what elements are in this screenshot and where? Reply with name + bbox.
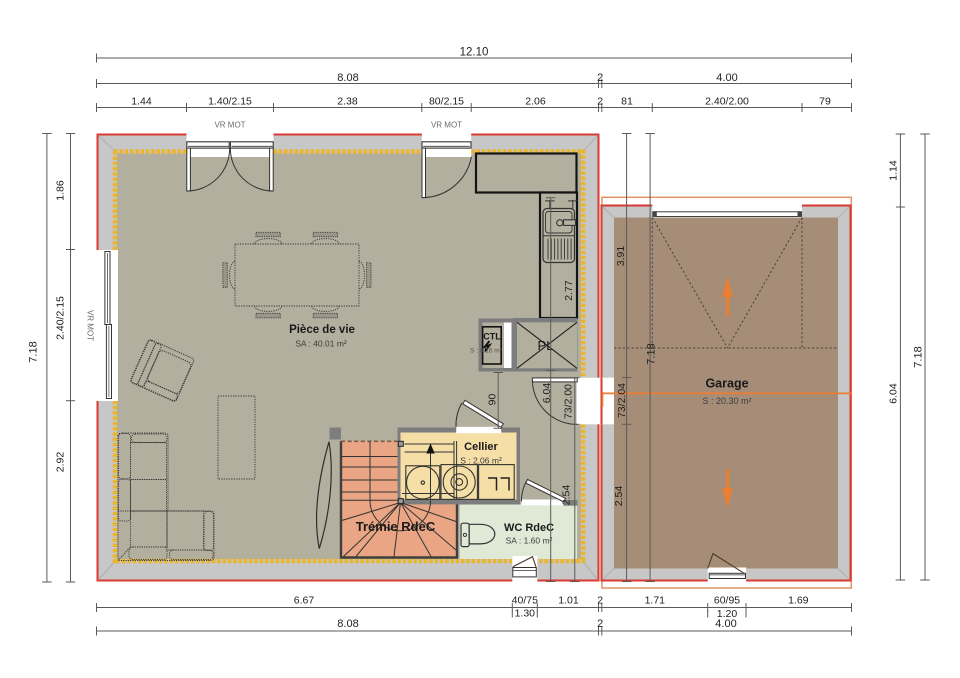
svg-text:1.71: 1.71 (645, 595, 666, 607)
svg-text:7.18: 7.18 (913, 346, 925, 367)
svg-text:1.30: 1.30 (515, 608, 536, 620)
svg-text:1.69: 1.69 (788, 595, 809, 607)
svg-text:VR MOT: VR MOT (431, 121, 462, 130)
svg-text:2.92: 2.92 (55, 452, 67, 473)
svg-text:4.00: 4.00 (716, 72, 737, 84)
svg-text:S : 20.30 m²: S : 20.30 m² (702, 396, 751, 406)
svg-text:SA : 40.01 m²: SA : 40.01 m² (295, 339, 347, 349)
svg-text:VR MOT: VR MOT (86, 310, 95, 341)
svg-text:2.54: 2.54 (560, 485, 572, 506)
svg-text:80/2.15: 80/2.15 (429, 95, 464, 107)
svg-text:1.40/2.15: 1.40/2.15 (208, 95, 252, 107)
svg-text:Cellier: Cellier (464, 441, 498, 453)
svg-text:73/2.00: 73/2.00 (563, 384, 575, 419)
svg-text:7.18: 7.18 (28, 341, 40, 362)
svg-text:1.86: 1.86 (55, 180, 67, 201)
svg-text:Trémie RdeC: Trémie RdeC (356, 519, 436, 534)
svg-text:Garage: Garage (705, 377, 748, 391)
svg-text:1.01: 1.01 (558, 595, 579, 607)
svg-text:2.38: 2.38 (337, 95, 358, 107)
svg-text:2.77: 2.77 (563, 280, 575, 301)
svg-text:2: 2 (597, 72, 603, 84)
svg-text:40/75: 40/75 (512, 595, 538, 607)
svg-text:6.04: 6.04 (541, 383, 553, 404)
svg-text:2.40/2.00: 2.40/2.00 (705, 95, 749, 107)
svg-text:7.18: 7.18 (646, 343, 658, 364)
svg-text:SA : 1.60 m²: SA : 1.60 m² (506, 536, 553, 546)
svg-text:2: 2 (597, 618, 603, 630)
svg-text:81: 81 (621, 95, 633, 107)
svg-text:8.08: 8.08 (337, 618, 358, 630)
svg-text:2: 2 (597, 595, 603, 607)
svg-text:3.91: 3.91 (615, 246, 627, 267)
svg-text:12.10: 12.10 (460, 47, 489, 59)
svg-text:2.06: 2.06 (525, 95, 546, 107)
svg-text:Pièce de vie: Pièce de vie (289, 324, 355, 336)
svg-text:2: 2 (597, 95, 603, 107)
svg-text:60/95: 60/95 (714, 595, 740, 607)
svg-text:S : 0.16 m²: S : 0.16 m² (470, 348, 503, 355)
svg-text:90: 90 (487, 394, 499, 406)
svg-text:4.00: 4.00 (715, 618, 736, 630)
svg-text:8.08: 8.08 (337, 72, 358, 84)
svg-text:79: 79 (819, 95, 831, 107)
svg-text:2.40/2.15: 2.40/2.15 (55, 296, 67, 340)
svg-text:6.67: 6.67 (294, 595, 315, 607)
svg-text:1.44: 1.44 (131, 95, 152, 107)
svg-text:6.04: 6.04 (887, 383, 899, 404)
svg-text:1.14: 1.14 (887, 160, 899, 181)
svg-text:WC RdeC: WC RdeC (504, 522, 554, 534)
svg-text:S : 2.06 m²: S : 2.06 m² (460, 456, 502, 466)
svg-text:2.54: 2.54 (613, 486, 625, 507)
svg-text:CTL: CTL (483, 332, 501, 342)
svg-text:VR MOT: VR MOT (214, 121, 245, 130)
svg-text:73/2.04: 73/2.04 (616, 383, 628, 418)
